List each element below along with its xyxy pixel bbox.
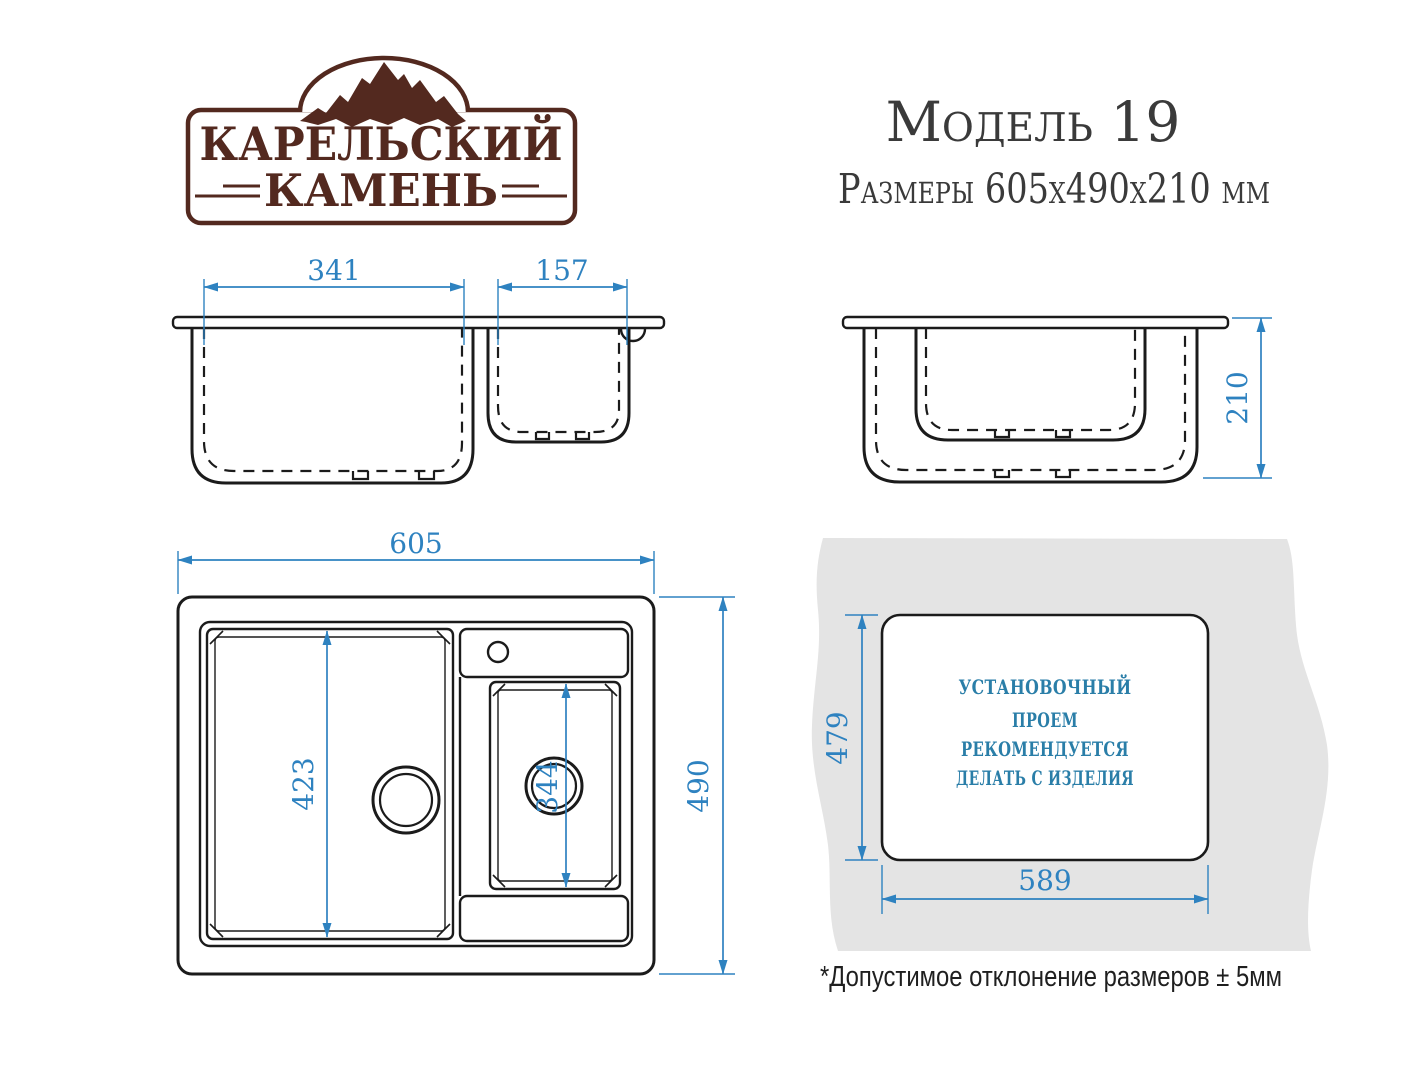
brand-logo: КАРЕЛЬСКИЙ КАМЕНЬ xyxy=(188,58,575,223)
front-view: 341 157 xyxy=(173,254,664,483)
side-dimensions: 210 xyxy=(1203,318,1272,478)
tolerance-footnote: *Допустимое отклонение размеров ± 5мм xyxy=(820,961,1282,993)
cutout-note-line2: ПРОЕМ xyxy=(1012,708,1078,732)
side-view: 210 xyxy=(843,317,1272,482)
front-large-bowl xyxy=(192,328,473,483)
dim-cutout-height: 479 xyxy=(821,711,854,764)
overflow-arc xyxy=(621,329,645,341)
dim-front-bowl-width: 341 xyxy=(307,254,360,287)
dim-front-small-bowl-width: 157 xyxy=(535,254,588,287)
cutout-note-line3: РЕКОМЕНДУЕТСЯ xyxy=(961,737,1129,761)
side-shallow-bowl xyxy=(916,328,1145,440)
dim-side-depth: 210 xyxy=(1221,371,1254,424)
dim-top-bowl-length: 423 xyxy=(287,757,320,810)
dim-top-small-bowl-length: 344 xyxy=(531,760,564,813)
cutout-note-line4: ДЕЛАТЬ С ИЗДЕЛИЯ xyxy=(956,766,1134,790)
top-view: 605 490 423 344 xyxy=(178,527,735,974)
side-rim xyxy=(843,317,1228,328)
size-subtitle: Размеры 605х490х210 мм xyxy=(838,165,1270,213)
drawing-canvas: КАРЕЛЬСКИЙ КАМЕНЬ Модель 19 Размеры 605х… xyxy=(0,0,1411,1080)
dim-top-height: 490 xyxy=(682,759,715,812)
installation-view: УСТАНОВОЧНЫЙ ПРОЕМ РЕКОМЕНДУЕТСЯ ДЕЛАТЬ … xyxy=(812,538,1329,951)
logo-line1: КАРЕЛЬСКИЙ xyxy=(200,113,563,171)
side-deep-bowl xyxy=(864,328,1197,482)
logo-line2: КАМЕНЬ xyxy=(264,164,498,217)
front-dimensions: 341 157 xyxy=(204,254,627,345)
front-rim xyxy=(173,317,664,328)
dim-top-width: 605 xyxy=(389,527,442,560)
model-title: Модель 19 xyxy=(886,90,1181,154)
title-block: Модель 19 Размеры 605х490х210 мм xyxy=(838,90,1270,213)
front-small-bowl xyxy=(488,328,629,442)
cutout-note-line1: УСТАНОВОЧНЫЙ xyxy=(959,673,1132,699)
dim-cutout-width: 589 xyxy=(1018,864,1071,897)
sink-drawing-sheet: КАРЕЛЬСКИЙ КАМЕНЬ Модель 19 Размеры 605х… xyxy=(0,0,1411,1080)
